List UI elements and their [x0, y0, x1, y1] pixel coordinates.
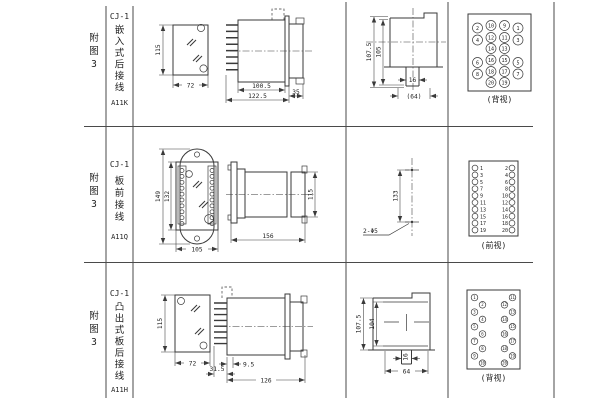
strip-dot: [210, 180, 214, 184]
screw-head: [194, 236, 199, 241]
a11h-terminal-grid: 1112123134145156167178189191020: [471, 294, 516, 366]
a11k-panel-cutout-view: 107.5 105 16 (64): [366, 8, 446, 100]
type-char: 式: [115, 324, 125, 336]
terminal-circle: [472, 179, 478, 185]
dim-label: 31.5: [210, 366, 225, 373]
terminal-number: 3: [516, 38, 519, 44]
figure-char: 附: [89, 310, 99, 322]
strip-dot: [180, 192, 184, 196]
terminal-number: 3: [473, 310, 476, 315]
strip-dot: [180, 186, 184, 190]
terminal-number: 7: [480, 187, 483, 193]
dim-label: 156: [262, 233, 273, 240]
dim-label: 72: [187, 82, 195, 89]
terminal-number: 5: [480, 180, 483, 186]
dim-height: 115: [155, 25, 173, 75]
model-label: CJ-1: [110, 160, 129, 169]
dim-label: 105: [191, 246, 202, 253]
glass-hatch-mark: [195, 328, 204, 335]
bracket-tab: [296, 78, 304, 84]
terminal-number: 8: [505, 187, 508, 193]
strip-dot: [210, 210, 214, 214]
type-char: 板: [115, 336, 125, 348]
terminal-number: 17: [510, 339, 515, 344]
terminal-number: 10: [480, 361, 485, 366]
terminal-number: 13: [480, 207, 486, 213]
strip-dot: [210, 186, 214, 190]
dim-bracket: 35: [290, 84, 304, 99]
terminal-number: 2: [505, 166, 508, 172]
type-char: 线: [115, 370, 125, 382]
a11k-terminal-grid: 2109141211314136161558181772019: [473, 21, 524, 88]
hole-label: 2-Φ5: [363, 228, 378, 235]
terminal-number: 2: [481, 302, 484, 307]
strip-dot: [180, 210, 184, 214]
terminal-circle: [509, 186, 515, 192]
terminal-circle: [472, 220, 478, 226]
a11h-terminal-view: 1112123134145156167178189191020 (背视): [467, 290, 520, 383]
dim-flange: (64): [390, 88, 438, 100]
terminal-number: 1: [516, 26, 519, 32]
type-char: 嵌: [115, 24, 125, 36]
terminal-number: 1: [480, 166, 483, 172]
terminal-number: 18: [488, 69, 494, 75]
terminal-number: 14: [502, 317, 507, 322]
hole-center: [411, 221, 413, 223]
terminal-number: 20: [488, 80, 494, 86]
hole-callout: 2-Φ5: [363, 224, 409, 236]
terminal-number: 6: [505, 180, 508, 186]
a11k-terminal-view: 2109141211314136161558181772019 (背视): [468, 14, 531, 104]
terminal-number: 6: [481, 331, 484, 336]
terminal-number: 19: [510, 353, 515, 358]
strip-dot: [180, 216, 184, 220]
model-column: CJ-1 板 前 接 线 A11Q: [110, 160, 129, 241]
terminal-circle: [509, 220, 515, 226]
dim-label: 35: [292, 89, 300, 96]
dim-label: 16: [403, 353, 410, 361]
dim-stem: 16: [393, 353, 420, 361]
dim-width: 72: [173, 75, 208, 89]
a11k-front-view: 115 72: [155, 24, 208, 89]
type-char: 式: [115, 47, 125, 59]
terminal-number: 17: [501, 69, 507, 75]
figure-char: 附: [89, 172, 99, 184]
type-char: 凸: [115, 302, 125, 313]
dim-body-length: 100.5: [238, 82, 285, 93]
terminal-circle: [509, 207, 515, 213]
terminal-number: 2: [476, 26, 479, 32]
terminal-number: 16: [502, 214, 508, 220]
center-marks: [384, 314, 429, 331]
terminal-number: 12: [488, 35, 494, 41]
terminal-pins: [214, 303, 227, 344]
hole-center: [411, 169, 413, 171]
type-char: 线: [115, 82, 125, 94]
terminal-number: 5: [473, 324, 476, 329]
terminal-number: 14: [502, 207, 508, 213]
terminal-number: 4: [481, 317, 484, 322]
terminal-number: 16: [488, 58, 494, 64]
terminal-circle: [472, 186, 478, 192]
dim-panel-inner: 104: [369, 302, 383, 346]
model-label: CJ-1: [110, 12, 129, 21]
figure-label: 附 图 3: [89, 310, 99, 348]
terminal-number: 20: [502, 228, 508, 234]
dim-label: 64: [403, 368, 411, 375]
a11h-side-view: 9.5 31.5 126: [206, 287, 313, 384]
terminal-circle: [472, 207, 478, 213]
terminal-number: 3: [480, 173, 483, 179]
dim-hole-spacing: 133: [393, 170, 410, 222]
dim-label: 107.5: [366, 42, 373, 61]
strip-dot: [180, 222, 184, 226]
a11q-terminal-view: 1234567891011121314151617181920 (前视): [469, 161, 518, 250]
terminal-number: 13: [510, 310, 515, 315]
terminal-circle: [509, 213, 515, 219]
rear-silhouette: [368, 293, 435, 364]
type-char: 出: [115, 313, 125, 325]
dim-label: 133: [393, 190, 400, 201]
type-char: 线: [115, 211, 125, 223]
strip-dot: [210, 192, 214, 196]
dim-panel-outer: 107.5: [366, 17, 404, 88]
dim-label: 9.5: [243, 361, 254, 368]
terminal-number: 8: [481, 346, 484, 351]
terminal-number: 13: [501, 46, 507, 52]
glass-hatch-mark: [191, 305, 200, 312]
terminal-number: 6: [476, 60, 479, 66]
dim-label: 122.5: [248, 93, 267, 100]
strip-dot: [180, 174, 184, 178]
terminal-number: 19: [480, 228, 486, 234]
bracket-tab: [296, 18, 304, 24]
view-caption: (前视): [481, 240, 507, 250]
code-label: A11H: [111, 386, 128, 394]
terminal-number: 10: [488, 23, 494, 29]
terminal-circle: [472, 227, 478, 233]
type-char: 入: [115, 37, 125, 48]
figure-char: 图: [89, 186, 99, 197]
mount-hole: [200, 65, 207, 72]
terminal-number: 19: [501, 80, 507, 86]
model-column: CJ-1 凸 出 式 板 后 接 线 A11H: [110, 289, 129, 394]
type-char: 接: [115, 199, 125, 211]
glass-hatch-mark: [199, 201, 208, 208]
mount-hole: [186, 171, 193, 178]
terminal-number: 15: [510, 324, 515, 329]
dim-height: 115: [305, 172, 318, 217]
row-a11h: 附 图 3 CJ-1 凸 出 式 板 后 接 线 A11H 115: [89, 287, 520, 394]
figure-label: 附 图 3: [89, 32, 99, 70]
a11q-mounting-holes-view: 133 2-Φ5: [363, 158, 419, 236]
type-char: 板: [115, 175, 125, 187]
terminal-circle: [472, 172, 478, 178]
terminal-number: 10: [502, 194, 508, 200]
terminal-number: 18: [502, 346, 507, 351]
terminal-circle: [472, 200, 478, 206]
terminal-number: 7: [516, 72, 519, 78]
type-char: 前: [115, 187, 125, 199]
mount-hole: [205, 215, 214, 224]
type-char: 后: [115, 348, 125, 359]
terminal-circle: [472, 213, 478, 219]
dim-height: 115: [157, 295, 175, 352]
view-caption: (背视): [487, 94, 513, 104]
dim-label: 100.5: [252, 83, 271, 90]
strip-dot: [210, 169, 214, 173]
handle-hidden-line: [272, 9, 284, 20]
dim-label: 16: [409, 77, 417, 84]
strip-dot: [180, 169, 184, 173]
dim-label: 72: [189, 360, 197, 367]
strip-dot: [210, 204, 214, 208]
strip-dot: [180, 204, 184, 208]
terminal-circle: [509, 200, 515, 206]
a11q-strip-dots: [180, 169, 214, 226]
terminal-number: 7: [473, 339, 476, 344]
terminal-number: 11: [510, 295, 515, 300]
figure-char: 3: [91, 59, 97, 70]
type-char: 接: [115, 70, 125, 82]
terminal-number: 1: [473, 295, 476, 300]
model-column: CJ-1 嵌 入 式 后 接 线 A11K: [110, 12, 129, 107]
terminal-number: 12: [502, 201, 508, 207]
terminal-number: 16: [502, 331, 507, 336]
terminal-number: 11: [501, 35, 507, 41]
terminal-number: 9: [473, 353, 476, 358]
glass-hatch-mark: [193, 55, 202, 62]
terminal-circle: [472, 165, 478, 171]
mount-hole: [178, 298, 185, 305]
dim-label: 132: [164, 191, 171, 202]
dim-width: 105: [176, 230, 218, 253]
row-a11q: 附 图 3 CJ-1 板 前 接 线 A11Q: [89, 149, 518, 253]
terminal-number: 12: [502, 302, 507, 307]
glass-hatch-mark: [187, 39, 196, 46]
terminal-pins: [226, 25, 238, 70]
panel-outline: [175, 295, 210, 352]
terminal-circle: [509, 227, 515, 233]
panel-outline: [173, 25, 208, 75]
terminal-number: 9: [503, 23, 506, 29]
figure-label: 附 图 3: [89, 172, 99, 210]
dim-label: 105: [376, 46, 383, 57]
row-a11k: 附 图 3 CJ-1 嵌 入 式 后 接 线 A11K 115: [89, 8, 531, 107]
dim-label: 115: [155, 44, 162, 55]
terminal-number: 9: [480, 194, 483, 200]
terminal-number: 11: [480, 201, 486, 207]
terminal-number: 8: [476, 72, 479, 78]
terminal-number: 15: [501, 58, 507, 64]
technical-drawing-svg: 附 图 3 CJ-1 嵌 入 式 后 接 线 A11K 115: [0, 0, 600, 400]
mount-hole: [200, 342, 207, 349]
inner-edges: [383, 302, 428, 346]
figure-char: 图: [89, 46, 99, 57]
dim-label: 126: [260, 377, 271, 384]
rear-silhouette: [384, 13, 443, 86]
terminal-number: 4: [505, 173, 508, 179]
terminal-number: 17: [480, 221, 486, 227]
model-label: CJ-1: [110, 289, 129, 298]
code-label: A11Q: [111, 233, 128, 241]
a11h-panel-cutout-view: 107.5 104 16 64: [356, 293, 436, 375]
dim-width: 72: [175, 352, 210, 367]
code-label: A11K: [111, 99, 129, 107]
dim-inner-height: 132: [164, 162, 176, 230]
figure-char: 图: [89, 324, 99, 335]
dim-stem: 16: [398, 77, 427, 84]
type-char: 后: [115, 60, 125, 71]
dim-length: 126: [228, 355, 306, 384]
strip-dot: [180, 198, 184, 202]
dim-label: 115: [157, 318, 164, 329]
type-char: 接: [115, 359, 125, 371]
terminal-number: 14: [488, 46, 494, 52]
dim-label: 149: [155, 191, 162, 202]
figure-char: 3: [91, 199, 97, 210]
spacer: [237, 169, 245, 218]
terminal-number: 15: [480, 214, 486, 220]
figure-char: 3: [91, 337, 97, 348]
dim-label: 115: [308, 189, 315, 200]
terminal-circle: [509, 165, 515, 171]
drawing-sheet: 附 图 3 CJ-1 嵌 入 式 后 接 线 A11K 115: [0, 0, 600, 400]
dim-label: 104: [369, 318, 376, 329]
a11h-front-view: 115 72: [157, 295, 210, 367]
strip-dot: [180, 180, 184, 184]
terminal-number: 4: [476, 38, 479, 44]
dim-label: 107.5: [356, 314, 363, 333]
terminal-number: 20: [502, 361, 507, 366]
mount-plate: [231, 162, 237, 223]
terminal-number: 18: [502, 221, 508, 227]
a11k-side-view: 100.5 122.5 35: [226, 9, 312, 103]
a11q-terminal-grid: 1234567891011121314151617181920: [472, 165, 515, 234]
a11q-front-view: 149 132 105: [155, 149, 218, 253]
handle-hidden-line: [222, 287, 232, 298]
screw-head: [194, 152, 199, 157]
strip-dot: [210, 198, 214, 202]
view-caption: (背视): [481, 373, 507, 383]
terminal-number: 5: [516, 60, 519, 66]
terminal-circle: [472, 193, 478, 199]
terminal-circle: [509, 179, 515, 185]
terminal-circle: [509, 172, 515, 178]
strip-dot: [210, 174, 214, 178]
terminal-circle: [509, 193, 515, 199]
a11q-side-view: 156 115: [226, 162, 318, 243]
glass-hatch-mark: [193, 181, 202, 188]
figure-char: 附: [89, 32, 99, 44]
dim-length: 156: [231, 217, 305, 243]
dim-label: (64): [407, 93, 422, 100]
